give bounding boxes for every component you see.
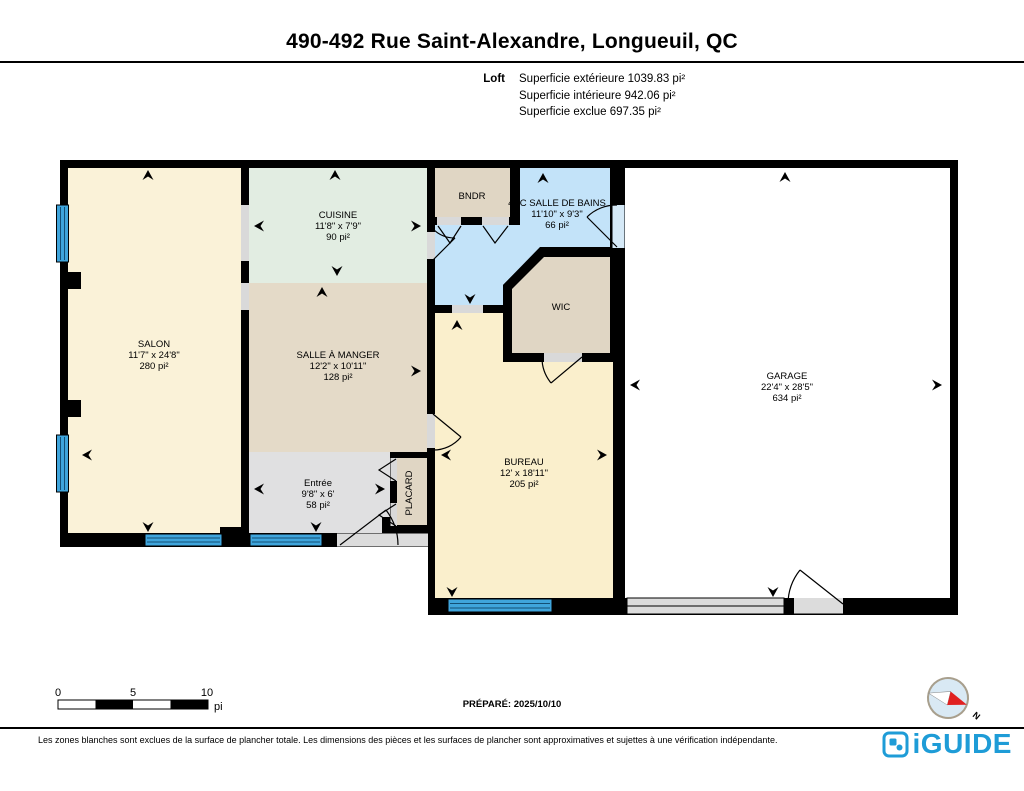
compass-north-label: N <box>971 710 982 722</box>
svg-text:WIC: WIC <box>552 302 571 313</box>
svg-text:280 pi²: 280 pi² <box>139 361 168 372</box>
garage-door <box>627 598 784 614</box>
svg-text:128 pi²: 128 pi² <box>323 372 352 383</box>
iguide-logo-icon <box>882 731 909 758</box>
iguide-logo: iGUIDE <box>882 728 1012 760</box>
svg-text:9'8" x 6': 9'8" x 6' <box>302 489 335 500</box>
svg-text:CUISINE: CUISINE <box>319 210 358 221</box>
svg-text:0: 0 <box>55 687 61 699</box>
room-placard-label: PLACARD <box>404 470 415 515</box>
footer-divider <box>0 727 1024 729</box>
compass-icon: N <box>924 674 982 722</box>
svg-text:PLACARD: PLACARD <box>404 470 415 515</box>
svg-text:634 pi²: 634 pi² <box>772 393 801 404</box>
svg-text:58 pi²: 58 pi² <box>306 500 330 511</box>
window <box>57 435 69 492</box>
svg-text:BUREAU: BUREAU <box>504 457 544 468</box>
svg-text:BNDR: BNDR <box>459 191 486 202</box>
room-entree-label: Entrée 9'8" x 6' 58 pi² <box>302 478 335 511</box>
svg-text:12'2" x 10'11": 12'2" x 10'11" <box>310 361 367 372</box>
svg-text:Entrée: Entrée <box>304 478 332 489</box>
window <box>145 534 222 546</box>
svg-text:90 pi²: 90 pi² <box>326 232 350 243</box>
svg-text:11'7" x 24'8": 11'7" x 24'8" <box>128 350 179 361</box>
svg-text:4PC SALLE DE BAINS: 4PC SALLE DE BAINS <box>508 198 606 209</box>
floor-plan-page: 490-492 Rue Saint-Alexandre, Longueuil, … <box>0 0 1024 791</box>
svg-text:5: 5 <box>130 687 136 699</box>
prepared-date: PRÉPARÉ: 2025/10/10 <box>463 699 562 710</box>
svg-text:pi: pi <box>214 701 223 713</box>
svg-text:11'8" x 7'9": 11'8" x 7'9" <box>315 221 361 232</box>
floor-plan: SALON 11'7" x 24'8" 280 pi² CUISINE 11'8… <box>0 0 1024 791</box>
svg-text:66 pi²: 66 pi² <box>545 220 569 231</box>
disclaimer-text: Les zones blanches sont exclues de la su… <box>38 735 777 745</box>
svg-text:22'4" x 28'5": 22'4" x 28'5" <box>761 382 813 393</box>
svg-text:SALLE À MANGER: SALLE À MANGER <box>297 350 380 361</box>
svg-text:12' x 18'11": 12' x 18'11" <box>500 468 548 479</box>
room-wic-label: WIC <box>552 302 571 313</box>
window <box>448 599 552 612</box>
window <box>57 205 69 262</box>
room-bndr-label: BNDR <box>459 191 486 202</box>
scale-bar: 0 5 10 pi <box>55 687 223 713</box>
svg-text:10: 10 <box>201 687 213 699</box>
svg-text:SALON: SALON <box>138 339 170 350</box>
svg-text:GARAGE: GARAGE <box>767 371 808 382</box>
iguide-logo-text: iGUIDE <box>913 728 1012 760</box>
window <box>250 534 322 546</box>
svg-text:205 pi²: 205 pi² <box>509 479 538 490</box>
svg-text:11'10" x 9'3": 11'10" x 9'3" <box>531 209 582 220</box>
